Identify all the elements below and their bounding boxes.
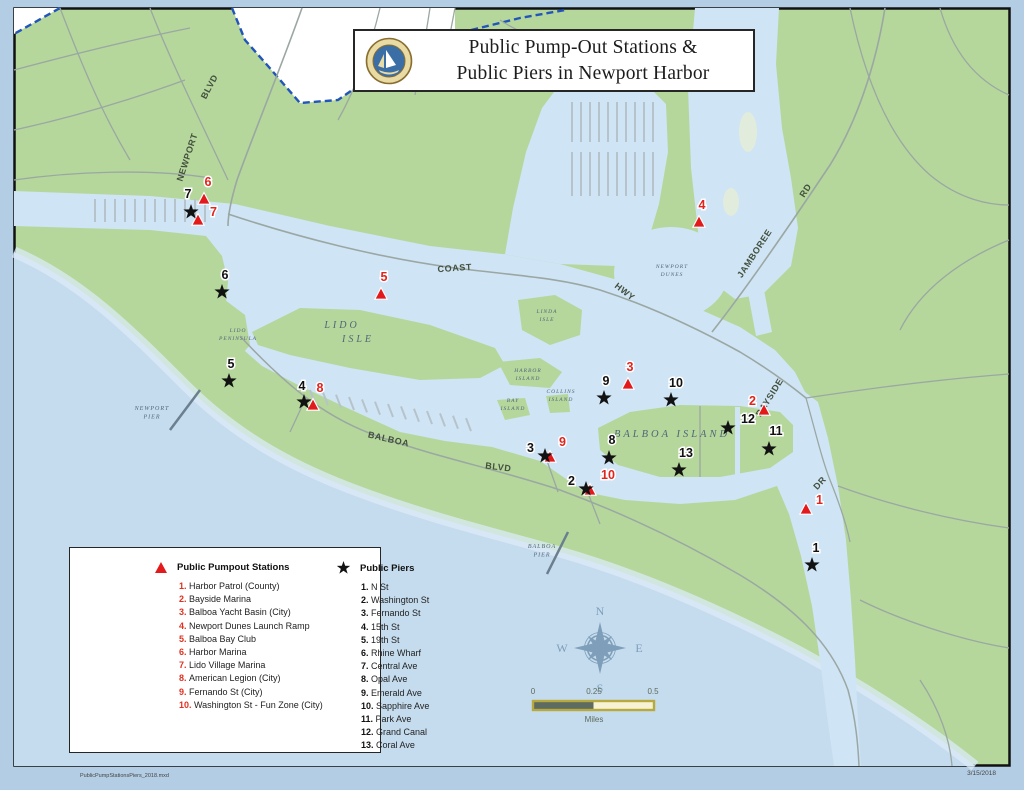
- legend-pier-item-5: 5. 19th St: [361, 634, 448, 647]
- pier-marker-number-3: 3: [527, 441, 534, 455]
- pier-marker-number-5: 5: [228, 357, 235, 371]
- pumpout-marker-number-1: 1: [816, 493, 823, 507]
- place-label-newport: NEWPORT: [134, 406, 170, 412]
- compass-w-label: W: [556, 641, 568, 655]
- legend-piers-header: Public Piers: [360, 563, 414, 574]
- legend-pier-item-3: 3. Fernando St: [361, 607, 448, 620]
- footer-filename: PublicPumpStationsPiers_2018.mxd: [80, 773, 169, 779]
- pier-marker-number-13: 13: [679, 446, 693, 460]
- place-label-linda: LINDA: [536, 309, 558, 315]
- legend-pier-item-4: 4. 15th St: [361, 621, 448, 634]
- place-label-balboa-island: BALBOA ISLAND: [614, 429, 730, 440]
- place-label-peninsula: PENINSULA: [218, 336, 257, 342]
- legend-pier-item-1: 1. N St: [361, 581, 448, 594]
- map-title-line1: Public Pump-Out Stations &: [413, 35, 753, 61]
- pumpout-marker-number-6: 6: [205, 175, 212, 189]
- map-page: NEWPORTBLVDCOASTHWYJAMBOREERDBAYSIDEDRBA…: [0, 0, 1024, 790]
- place-label-dunes: DUNES: [660, 272, 684, 278]
- place-label-lido: LIDO: [229, 328, 247, 334]
- pier-marker-number-11: 11: [769, 424, 782, 438]
- legend-pumpout-item-2: 2. Bayside Marina: [179, 593, 354, 606]
- legend-pier-item-12: 12. Grand Canal: [361, 726, 448, 739]
- place-label-harbor: HARBOR: [513, 368, 541, 374]
- pumpout-marker-number-5: 5: [381, 270, 388, 284]
- pier-marker-number-6: 6: [222, 268, 229, 282]
- place-label-island: ISLAND: [500, 406, 526, 412]
- place-label-balboa: BALBOA: [528, 544, 556, 550]
- legend-box: Public Pumpout Stations 1. Harbor Patrol…: [69, 547, 381, 753]
- scale-tick-half: 0.5: [647, 687, 659, 696]
- place-label-pier: PIER: [143, 415, 161, 421]
- legend-pier-item-10: 10. Sapphire Ave: [361, 700, 448, 713]
- footer-date: 3/15/2018: [967, 770, 996, 777]
- legend-pumpout-column: Public Pumpout Stations 1. Harbor Patrol…: [154, 561, 354, 712]
- legend-pumpout-header-row: Public Pumpout Stations: [154, 561, 354, 574]
- legend-pier-item-11: 11. Park Ave: [361, 713, 448, 726]
- pumpout-triangle-icon: [154, 561, 168, 574]
- pier-marker-number-9: 9: [603, 374, 610, 388]
- pumpout-marker-number-8: 8: [317, 381, 324, 395]
- pumpout-marker-number-7: 7: [210, 205, 217, 219]
- place-label-lido: LIDO: [323, 320, 359, 331]
- legend-pumpout-list: 1. Harbor Patrol (County)2. Bayside Mari…: [154, 580, 354, 712]
- pumpout-marker-number-10: 10: [601, 468, 615, 482]
- grand-canal-water: [735, 407, 740, 476]
- map-title: Public Pump-Out Stations & Public Piers …: [413, 35, 753, 86]
- place-label-pier: PIER: [533, 553, 551, 559]
- legend-pumpout-item-3: 3. Balboa Yacht Basin (City): [179, 606, 354, 619]
- scale-tick-quarter: 0.25: [586, 687, 602, 696]
- legend-pumpout-item-8: 8. American Legion (City): [179, 672, 354, 685]
- pumpout-marker-number-2: 2: [749, 394, 756, 408]
- legend-pumpout-item-4: 4. Newport Dunes Launch Ramp: [179, 620, 354, 633]
- pumpout-marker-number-9: 9: [559, 435, 566, 449]
- pier-marker-number-8: 8: [609, 433, 616, 447]
- legend-pier-item-6: 6. Rhine Wharf: [361, 647, 448, 660]
- legend-piers-column: Public Piers 1. N St2. Washington St3. F…: [336, 561, 448, 753]
- legend-pier-item-9: 9. Emerald Ave: [361, 687, 448, 700]
- place-label-island: ISLAND: [515, 376, 541, 382]
- place-label-isle: ISLE: [539, 317, 555, 323]
- legend-pier-item-2: 2. Washington St: [361, 594, 448, 607]
- pumpout-marker-number-4: 4: [699, 198, 706, 212]
- legend-pumpout-item-7: 7. Lido Village Marina: [179, 659, 354, 672]
- pier-star-icon: [336, 561, 351, 575]
- pier-marker-number-1: 1: [813, 541, 820, 555]
- legend-pier-item-8: 8. Opal Ave: [361, 673, 448, 686]
- compass-n-label: N: [596, 604, 605, 618]
- scale-tick-0: 0: [531, 687, 536, 696]
- legend-pumpout-item-9: 9. Fernando St (City): [179, 686, 354, 699]
- pier-marker-number-4: 4: [299, 379, 306, 393]
- legend-pumpout-item-5: 5. Balboa Bay Club: [179, 633, 354, 646]
- title-box: Public Pump-Out Stations & Public Piers …: [353, 29, 755, 92]
- legend-pumpout-item-1: 1. Harbor Patrol (County): [179, 580, 354, 593]
- place-label-isle: ISLE: [341, 334, 374, 345]
- place-label-newport: NEWPORT: [655, 264, 688, 270]
- legend-piers-list: 1. N St2. Washington St3. Fernando St4. …: [336, 581, 448, 753]
- pier-marker-number-12: 12: [741, 412, 755, 426]
- legend-piers-header-row: Public Piers: [336, 561, 448, 575]
- legend-pumpout-item-10: 10. Washington St - Fun Zone (City): [179, 699, 354, 712]
- scale-unit-label: Miles: [585, 715, 604, 724]
- legend-pier-item-13: 13. Coral Ave: [361, 739, 448, 752]
- pier-marker-number-7: 7: [185, 187, 192, 201]
- city-seal-icon: [365, 37, 413, 85]
- legend-pumpout-item-6: 6. Harbor Marina: [179, 646, 354, 659]
- legend-pier-item-7: 7. Central Ave: [361, 660, 448, 673]
- pier-marker-number-2: 2: [568, 474, 575, 488]
- place-label-bay: BAY: [507, 398, 519, 404]
- compass-e-label: E: [635, 641, 642, 655]
- place-label-island: ISLAND: [548, 397, 574, 403]
- map-title-line2: Public Piers in Newport Harbor: [413, 61, 753, 87]
- legend-pumpout-header: Public Pumpout Stations: [177, 562, 289, 573]
- pumpout-marker-number-3: 3: [627, 360, 634, 374]
- pier-marker-number-10: 10: [669, 376, 683, 390]
- place-label-collins: COLLINS: [546, 389, 575, 395]
